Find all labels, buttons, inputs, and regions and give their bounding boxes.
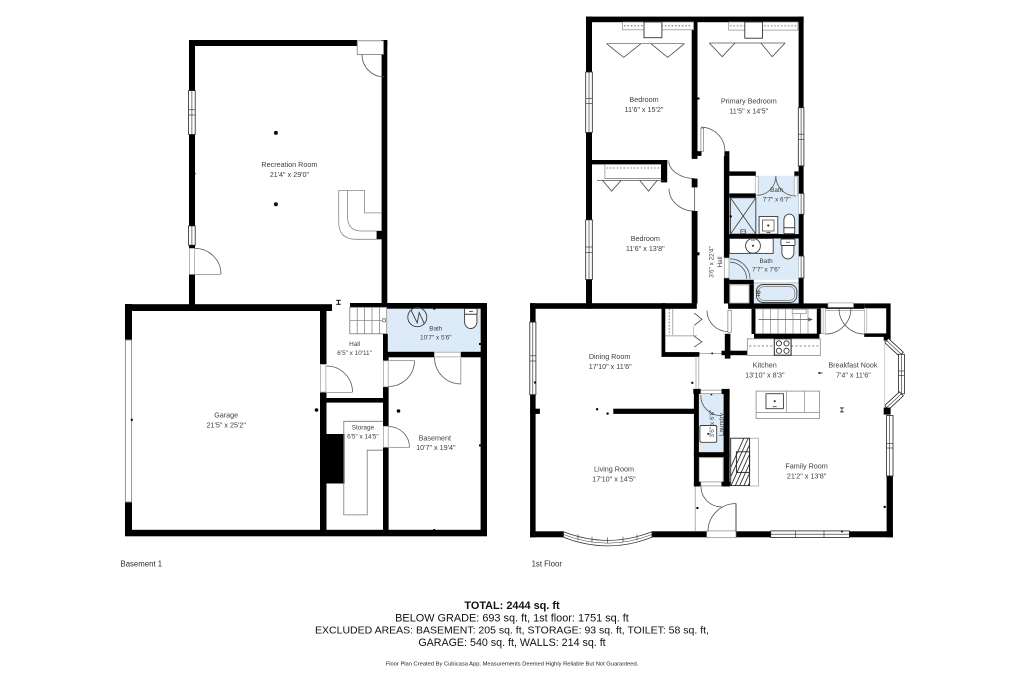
svg-text:EXCLUDED AREAS: BASEMENT: 205: EXCLUDED AREAS: BASEMENT: 205 sq. ft, ST…: [315, 625, 709, 637]
svg-text:TOTAL: 2444 sq. ft: TOTAL: 2444 sq. ft: [464, 600, 560, 612]
svg-text:10'7" x 19'4": 10'7" x 19'4": [416, 443, 456, 452]
svg-text:BELOW GRADE: 693 sq. ft, 1st f: BELOW GRADE: 693 sq. ft, 1st floor: 1751…: [395, 612, 629, 624]
svg-text:Dining Room: Dining Room: [589, 352, 631, 361]
svg-text:7'7" x 6'7": 7'7" x 6'7": [763, 197, 791, 204]
svg-text:17'10" x 11'6": 17'10" x 11'6": [589, 362, 632, 371]
svg-text:3'6" x 22'4": 3'6" x 22'4": [709, 246, 716, 278]
svg-text:Floor Plan Created By Cubicasa: Floor Plan Created By Cubicasa App. Meas…: [386, 662, 639, 668]
svg-text:Garage: Garage: [214, 410, 238, 419]
svg-text:Bath: Bath: [770, 187, 784, 194]
svg-text:11'6" x 15'2": 11'6" x 15'2": [625, 105, 664, 114]
svg-text:GARAGE: 540 sq. ft, WALLS: 214: GARAGE: 540 sq. ft, WALLS: 214 sq. ft: [418, 637, 605, 649]
svg-text:7'4" x 11'6": 7'4" x 11'6": [836, 371, 871, 380]
svg-text:Hall: Hall: [349, 341, 360, 348]
svg-text:Storage: Storage: [352, 424, 375, 431]
svg-text:Family Room: Family Room: [785, 462, 827, 471]
svg-text:21'5" x 25'2": 21'5" x 25'2": [206, 420, 246, 429]
svg-text:Basement 1: Basement 1: [121, 560, 163, 569]
svg-text:3'6" x 6'8": 3'6" x 6'8": [709, 410, 716, 438]
svg-text:Hall: Hall: [717, 256, 724, 267]
svg-text:21'2" x 13'8": 21'2" x 13'8": [787, 472, 827, 481]
svg-text:Kitchen: Kitchen: [753, 361, 777, 370]
svg-text:Bath: Bath: [760, 258, 774, 265]
svg-text:11'5" x 14'5": 11'5" x 14'5": [729, 107, 768, 116]
svg-text:21'4" x 29'0": 21'4" x 29'0": [270, 170, 310, 179]
svg-text:10'7" x 5'6": 10'7" x 5'6": [420, 335, 452, 342]
svg-text:11'6" x 13'8": 11'6" x 13'8": [626, 244, 665, 253]
svg-text:Laundry: Laundry: [718, 412, 725, 436]
svg-text:Recreation Room: Recreation Room: [261, 160, 317, 169]
svg-text:Living Room: Living Room: [594, 465, 634, 474]
svg-text:Bedroom: Bedroom: [629, 95, 658, 104]
svg-text:6'5" x 10'11": 6'5" x 10'11": [337, 350, 372, 357]
svg-text:17'10" x 14'5": 17'10" x 14'5": [592, 475, 636, 484]
svg-text:Basement: Basement: [419, 434, 451, 443]
svg-text:Bath: Bath: [429, 326, 443, 333]
svg-text:13'10" x 8'3": 13'10" x 8'3": [745, 371, 785, 380]
svg-text:Bedroom: Bedroom: [631, 234, 660, 243]
svg-text:6'5" x 14'5": 6'5" x 14'5": [347, 433, 379, 440]
svg-text:7'7" x 7'6": 7'7" x 7'6": [752, 267, 780, 274]
svg-text:Breakfast Nook: Breakfast Nook: [828, 361, 878, 370]
svg-text:1st Floor: 1st Floor: [532, 560, 563, 569]
svg-text:Primary Bedroom: Primary Bedroom: [721, 97, 777, 106]
